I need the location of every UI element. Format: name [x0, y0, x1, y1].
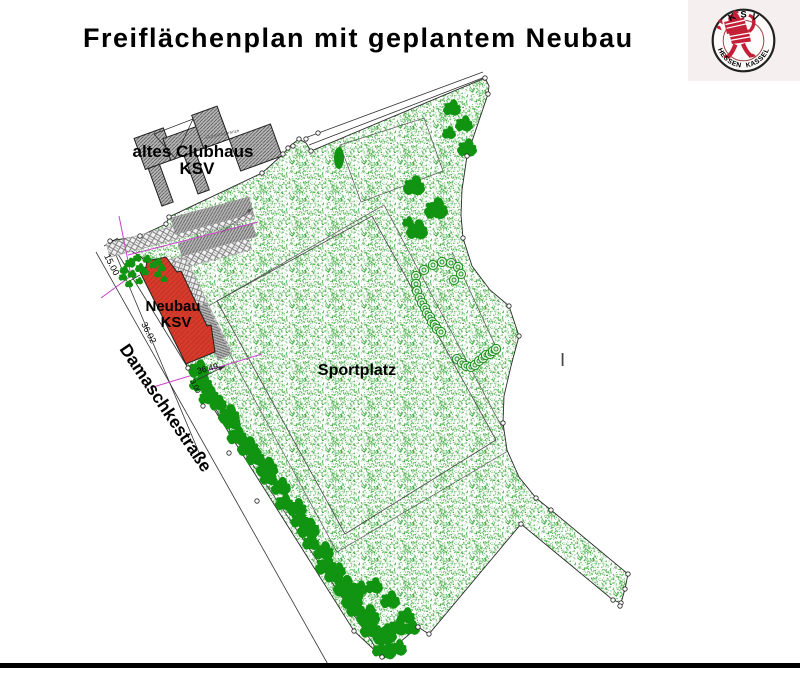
- svg-text:S: S: [740, 10, 746, 21]
- svg-text:KSV: KSV: [161, 314, 192, 331]
- svg-text:KSV: KSV: [180, 159, 216, 178]
- svg-text:Neubau: Neubau: [145, 298, 200, 315]
- svg-text:Sportplatz: Sportplatz: [318, 362, 396, 379]
- svg-text:I: I: [560, 349, 565, 370]
- svg-text:Freiflächenplan mit geplantem: Freiflächenplan mit geplantem Neubau: [83, 23, 634, 53]
